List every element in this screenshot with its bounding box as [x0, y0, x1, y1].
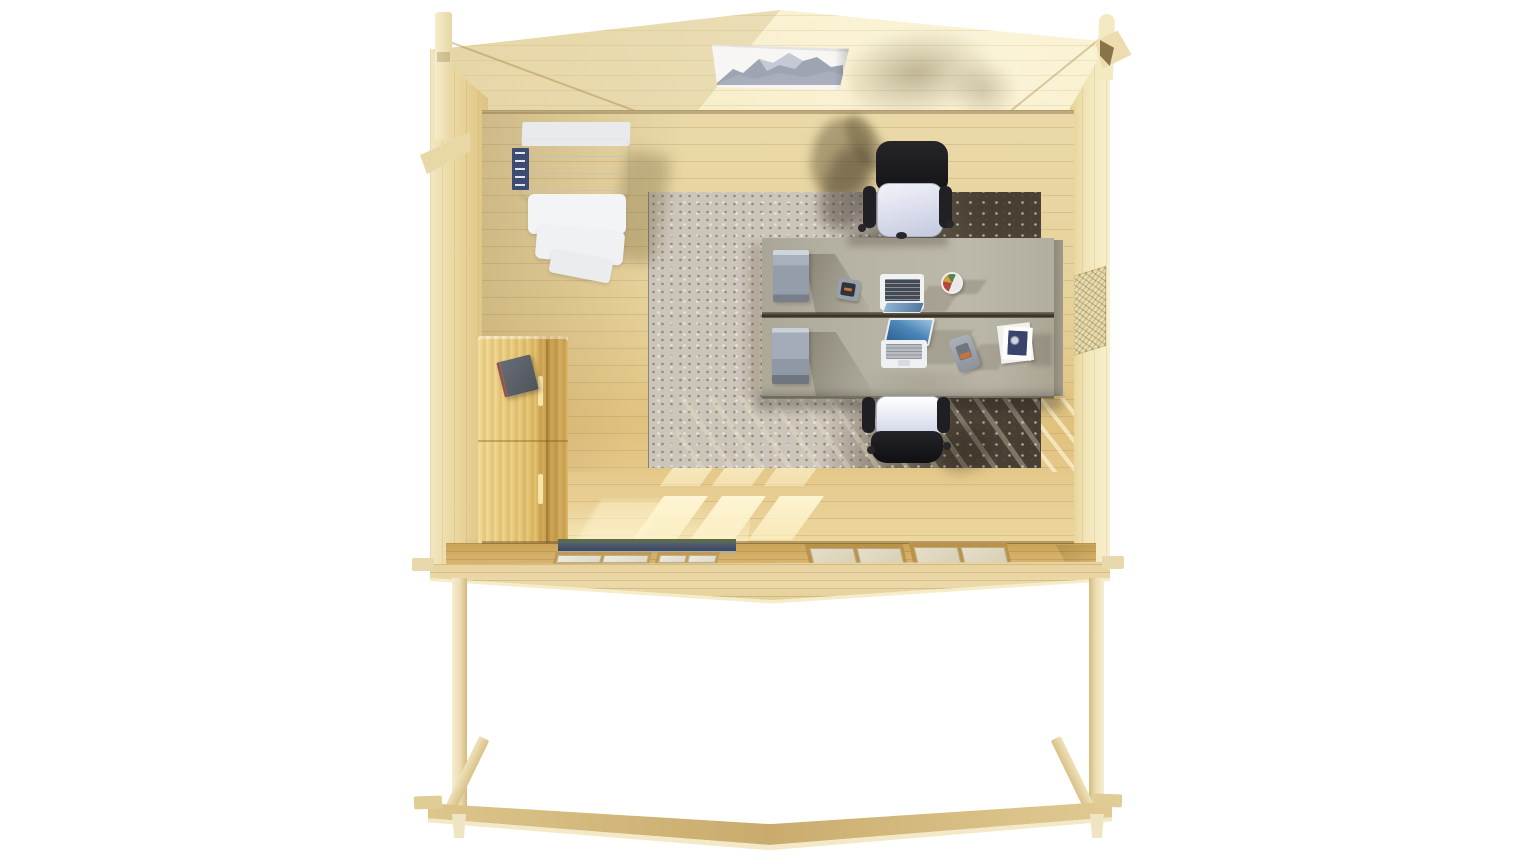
chair-near-backrest: [871, 431, 943, 463]
chair-near-arm-right: [937, 397, 950, 433]
chair-near-caster: [867, 446, 875, 454]
laptop-far-keyboard: [885, 279, 920, 301]
door-track: [558, 543, 736, 551]
pencil-cup-contents: [943, 274, 961, 292]
shadow-papers: [1030, 334, 1052, 366]
shelf-unit: [522, 140, 628, 198]
laptop-far: [880, 274, 924, 310]
window-pane: [658, 555, 687, 563]
pergola-beam: [428, 794, 1112, 852]
chair-far-arm-left: [863, 186, 876, 228]
deck-tab-right: [1102, 556, 1124, 569]
picture-frame: [709, 43, 849, 90]
post-foot-left: [452, 814, 466, 838]
chair-far-caster: [896, 232, 907, 239]
beam-stub-right: [1094, 794, 1122, 808]
chair-near-caster: [943, 442, 951, 450]
binders: [512, 148, 529, 190]
chair-far-seat: [877, 183, 943, 237]
chair-near-arm-left: [862, 397, 875, 433]
frame-shade: [709, 43, 849, 90]
deck-tab-left: [412, 558, 434, 571]
laptop-near-trackpad: [898, 360, 910, 366]
chair-far-caster: [858, 224, 866, 232]
magazine-photo: [1007, 331, 1027, 356]
laptop-far-screen: [882, 302, 925, 313]
beam-stub-left: [414, 796, 442, 810]
pergola-post-right: [1089, 578, 1104, 818]
desk-right-side: [1054, 240, 1063, 396]
window-pane: [602, 555, 648, 563]
shadow-desk-center: [850, 366, 1000, 396]
drawer-far: [773, 250, 809, 302]
window-pane: [687, 555, 716, 563]
cabinet-seam-h: [478, 440, 568, 442]
phone-far: [835, 277, 861, 301]
corner-joint-left: [435, 12, 452, 140]
cabinet-handle-slot: [538, 474, 543, 504]
laptop-near-keyboard: [886, 344, 922, 359]
drawer-near: [772, 328, 809, 384]
chair-near: [856, 394, 952, 466]
chair-far-caster: [946, 220, 954, 228]
cabinet-seam-v: [546, 340, 548, 546]
cabinet-handle-slot: [538, 376, 543, 406]
post-foot-right: [1090, 814, 1104, 838]
pencil-cup: [941, 272, 963, 294]
render-stage: [0, 0, 1536, 864]
chair-far: [856, 140, 952, 240]
laptop-near: [881, 340, 927, 368]
window-pane: [556, 555, 602, 563]
corner-joint-left-notch: [437, 52, 450, 62]
